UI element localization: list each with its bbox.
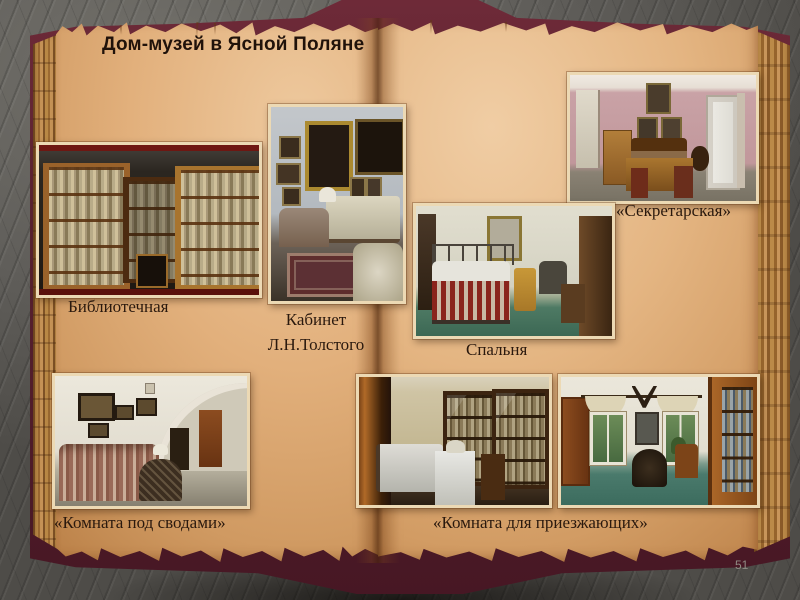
library-photo	[36, 142, 262, 298]
caption-vaulted-room: «Комната под сводами»	[54, 513, 226, 533]
picture-frame	[276, 163, 301, 184]
window	[590, 412, 625, 465]
bed	[376, 444, 443, 493]
picture-frame	[136, 398, 157, 416]
portrait-frame	[305, 121, 353, 191]
chair	[514, 268, 536, 311]
table	[435, 451, 475, 505]
caption-library: Библиотечная	[68, 297, 169, 317]
painting	[355, 119, 403, 175]
secretary-scene	[570, 75, 756, 201]
chair	[631, 168, 648, 198]
photo-edge	[39, 145, 259, 151]
chair	[481, 454, 506, 500]
door	[199, 410, 222, 467]
round-table	[139, 459, 181, 501]
round-table	[632, 449, 667, 487]
page-tear	[505, 22, 507, 32]
mirror	[635, 412, 659, 445]
window-curtain	[576, 90, 600, 168]
lamp	[319, 187, 336, 203]
book-shelves	[722, 387, 753, 492]
guest-room-photo-2	[558, 374, 760, 508]
chair	[674, 166, 693, 199]
door-frame	[737, 93, 744, 189]
bed-blanket	[432, 281, 510, 324]
table	[279, 208, 329, 247]
photo-edge	[39, 289, 259, 295]
slide-title: Дом-музей в Ясной Поляне	[102, 34, 364, 56]
bedroom-photo	[413, 203, 615, 339]
vaulted-room-scene	[55, 376, 247, 506]
picture-frame	[88, 423, 109, 439]
bookcase	[43, 163, 130, 289]
guest-room-scene-1	[359, 377, 549, 505]
picture-frame	[279, 136, 301, 159]
caption-guest-room: «Комната для приезжающих»	[433, 513, 648, 533]
guest-room-photo-1	[356, 374, 552, 508]
bed-linen	[432, 261, 510, 283]
armchair	[353, 243, 403, 301]
picture-frame	[282, 187, 302, 207]
study-photo	[268, 104, 406, 304]
caption-secretary: «Секретарская»	[616, 201, 731, 221]
chair	[136, 254, 169, 288]
picture-frame	[78, 393, 115, 421]
door	[706, 95, 740, 190]
study-scene	[271, 107, 403, 301]
guest-room-scene-2	[561, 377, 757, 505]
bedroom-scene	[416, 206, 612, 336]
door	[561, 397, 590, 485]
secretary-photo	[567, 72, 759, 204]
vaulted-room-photo	[52, 373, 250, 509]
bookcase	[175, 166, 259, 289]
chair	[675, 444, 699, 479]
caption-bedroom: Спальня	[466, 340, 527, 360]
slide-page-number: 51	[735, 558, 748, 572]
picture-frame	[366, 177, 382, 198]
sofa	[326, 196, 400, 243]
spinning-wheel	[691, 146, 710, 171]
caption-study: Кабинет Л.Н.Толстого	[246, 308, 386, 357]
library-scene	[39, 145, 259, 295]
picture-frame	[350, 177, 366, 198]
lamp	[446, 440, 465, 453]
chair	[561, 284, 585, 323]
picture-frame	[115, 405, 134, 421]
lamp	[153, 444, 168, 456]
slide: Дом-музей в Ясной Поляне Библиотечная Ка…	[0, 0, 800, 600]
wall-clock	[145, 383, 155, 394]
picture-frame	[646, 83, 670, 115]
